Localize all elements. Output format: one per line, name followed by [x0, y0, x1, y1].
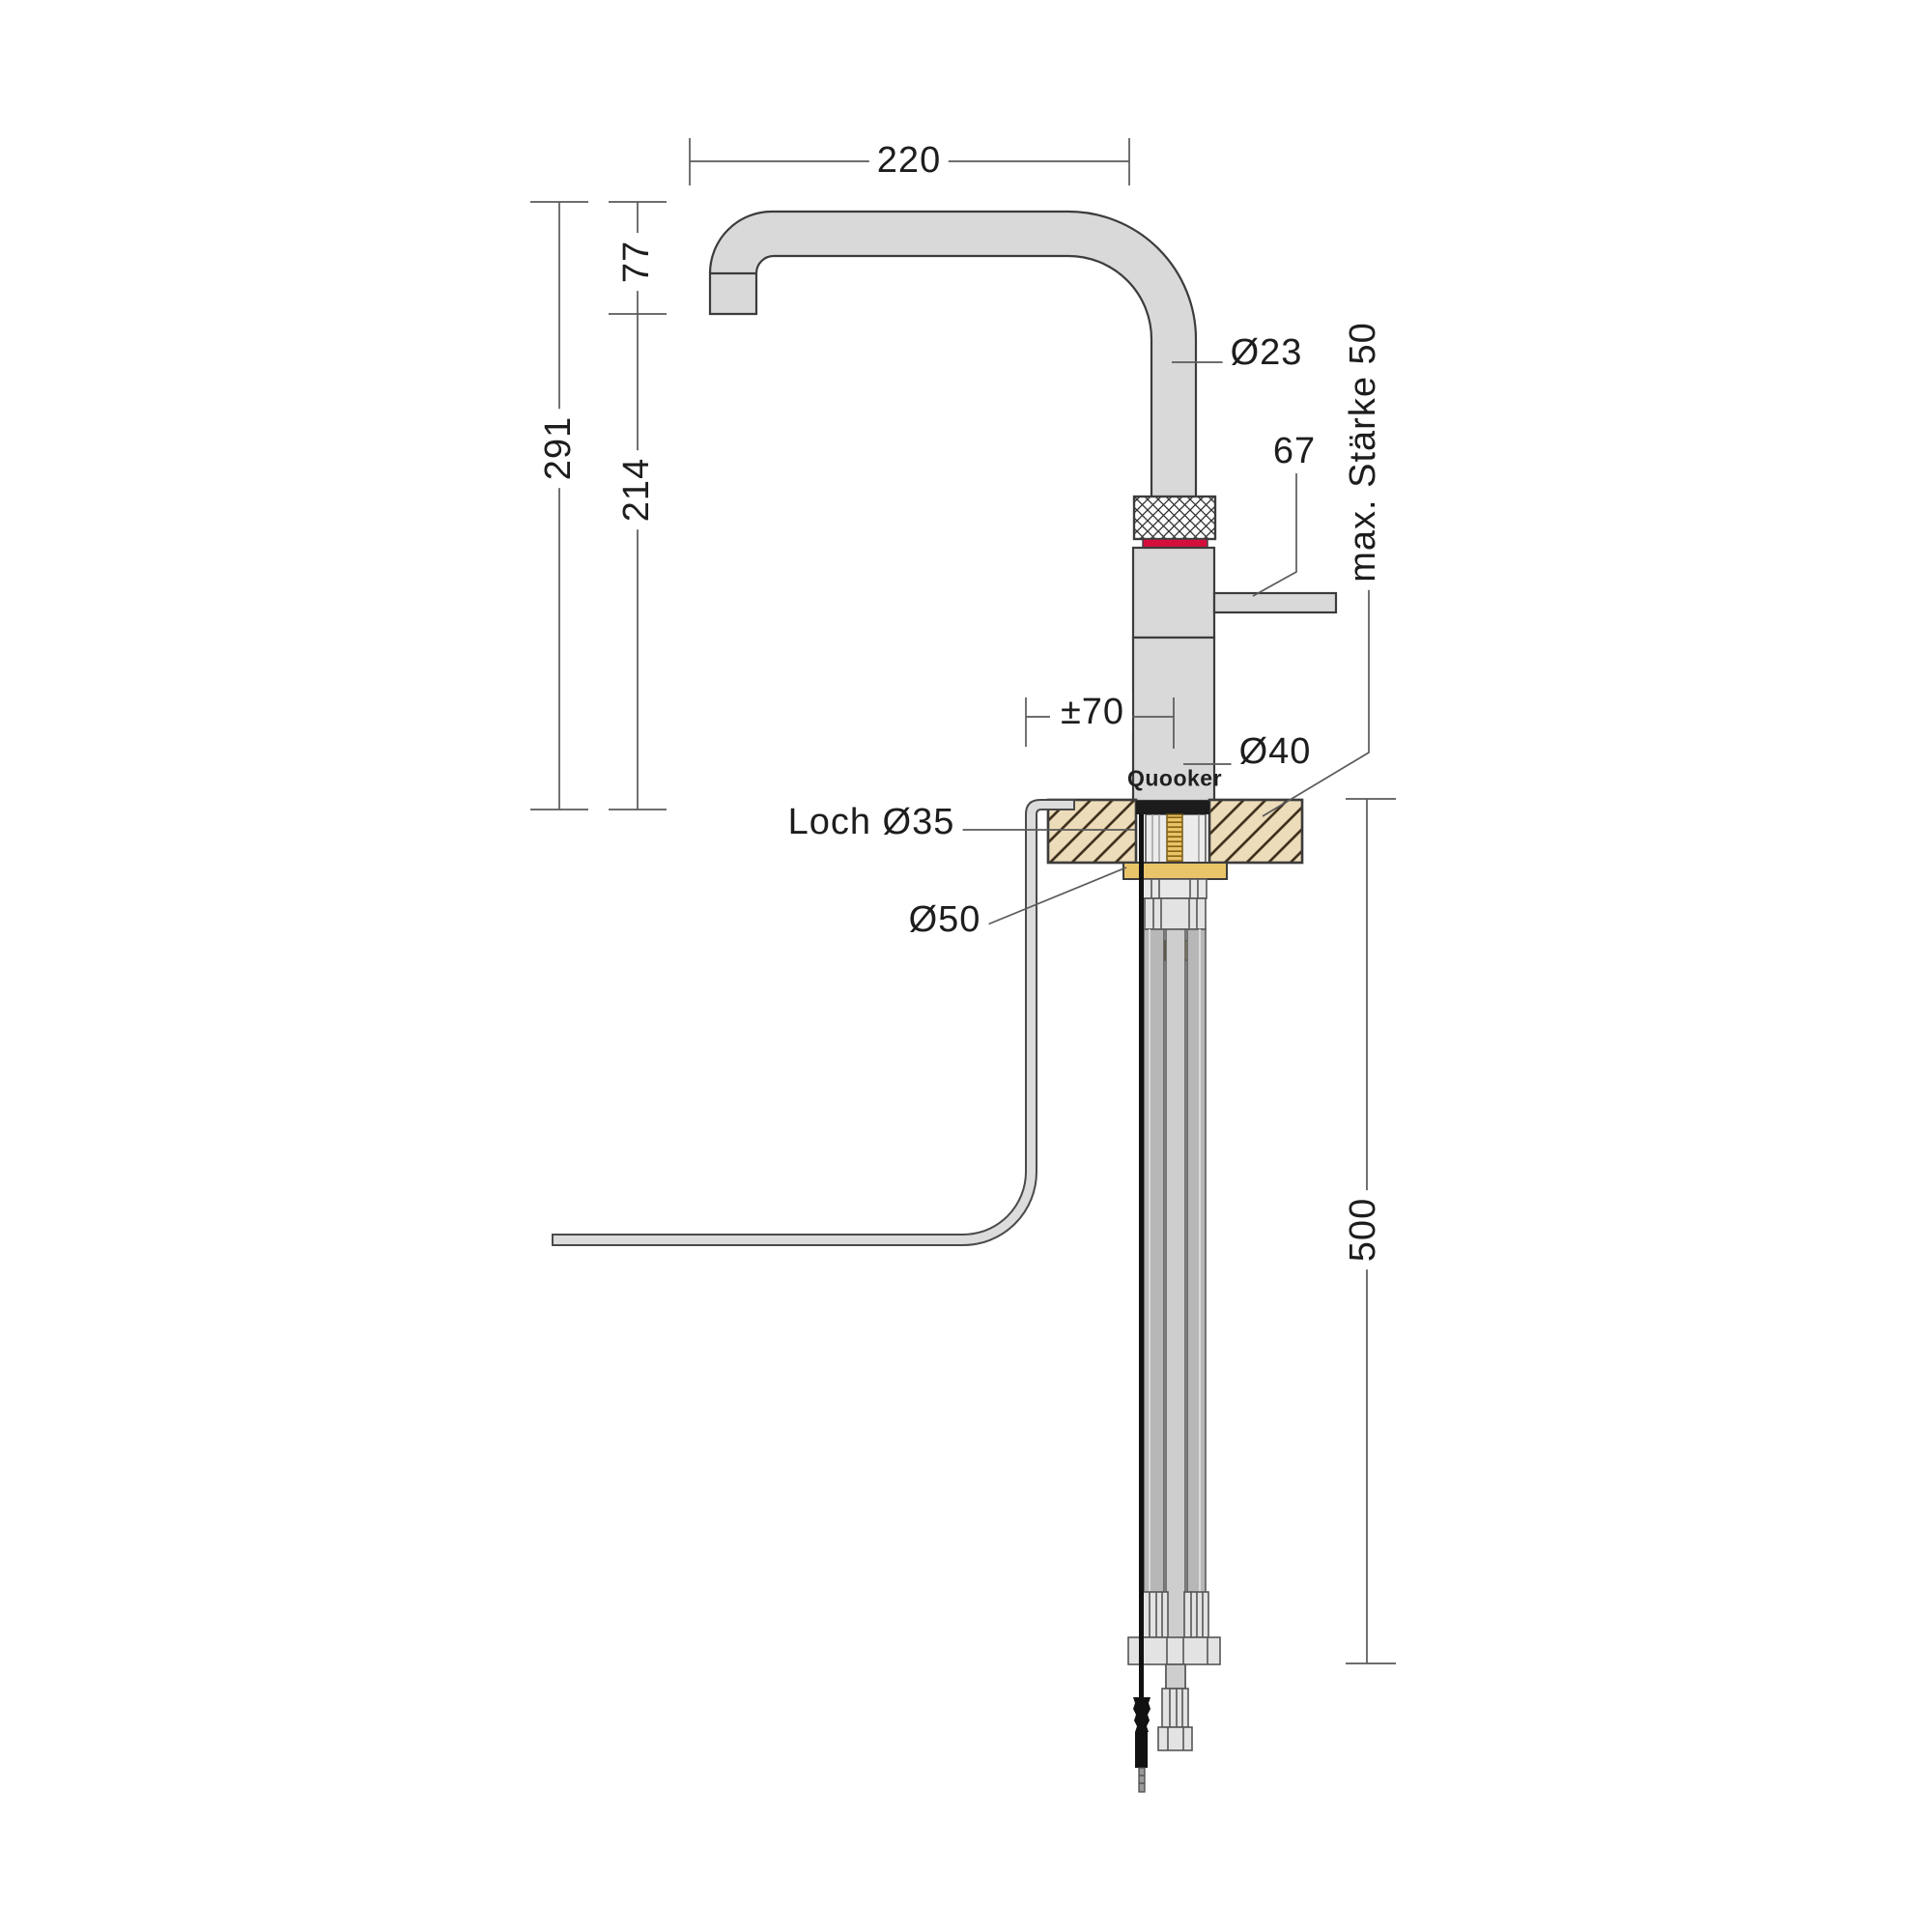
dim-label-spout-clearance: 214 — [616, 450, 659, 529]
technical-drawing-canvas: 220 77 291 214 Ø23 67 max. Stärke 50 ±70… — [0, 0, 1932, 1932]
dim-label-flange-diameter: Ø50 — [901, 899, 989, 942]
pipe-right — [1187, 929, 1206, 1594]
supply-pipes — [1144, 929, 1206, 1689]
plug-tip — [1139, 1768, 1145, 1792]
pipe-left — [1144, 929, 1164, 1594]
dim-label-handle-length: 67 — [1265, 431, 1323, 473]
dim-label-under-counter-depth: 500 — [1343, 1190, 1385, 1269]
dim-67-leader — [1253, 473, 1296, 596]
countertop-right-slab — [1209, 800, 1302, 863]
fitting-right — [1184, 1592, 1208, 1637]
upper-hex — [1143, 879, 1207, 898]
dim-291-line — [530, 202, 588, 810]
faucet-drawing — [0, 0, 1932, 1932]
base-seal — [1136, 801, 1209, 814]
dim-label-hole-diameter: Loch Ø35 — [781, 802, 963, 844]
dim-label-spout-drop: 77 — [616, 233, 659, 291]
spout-and-body — [710, 212, 1336, 801]
spout-tube — [710, 212, 1196, 498]
plug-body — [1135, 1732, 1148, 1768]
dim-label-spout-reach: 220 — [869, 140, 949, 183]
cable — [1139, 814, 1144, 1697]
handle-lever — [1214, 593, 1336, 612]
lower-hex — [1145, 898, 1206, 929]
flexible-hose — [553, 800, 1074, 1245]
valve-tail — [1158, 1664, 1192, 1750]
dim-label-max-counter-thickness: max. Stärke 50 — [1343, 314, 1385, 590]
dim-label-spout-diameter: Ø23 — [1223, 332, 1311, 375]
dim-label-swivel-offset: ±70 — [1053, 692, 1132, 734]
dim-label-total-height: 291 — [538, 409, 581, 488]
red-indicator-ring — [1143, 539, 1207, 548]
fitting-left — [1143, 1592, 1168, 1637]
dia50-leader — [985, 867, 1126, 925]
dim-label-body-diameter: Ø40 — [1232, 731, 1320, 774]
brand-logo: Quooker — [1127, 766, 1222, 792]
upper-body — [1133, 548, 1214, 638]
pipe-center — [1166, 929, 1185, 1689]
plug-strain-relief — [1133, 1697, 1151, 1732]
